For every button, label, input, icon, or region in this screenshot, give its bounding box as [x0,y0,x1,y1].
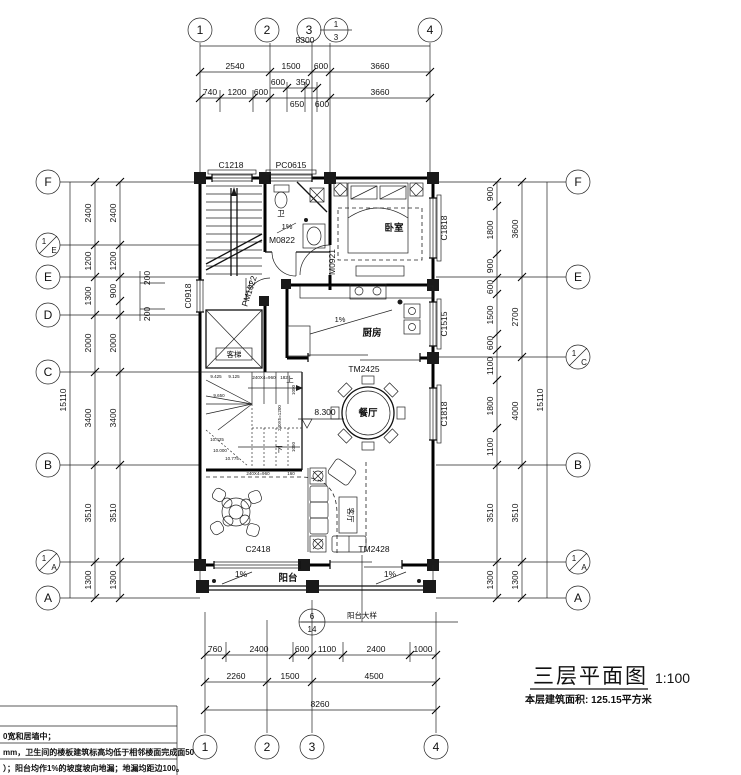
dim-label: 3660 [371,61,390,71]
dim-label: 650 [290,99,304,109]
dim-label: 2700 [510,307,520,326]
grid-bubble-C: C [44,365,53,379]
detail-number: 6 [310,612,315,621]
kitchen-label: 厨房 [362,327,381,339]
door-tm2425: TM2425 [308,353,420,374]
level-marker: 8.300 [314,407,336,417]
stair-note: 9.425 [210,374,222,379]
stair-note: 240X4=960 [246,471,270,476]
dim-label: 600 [314,61,328,71]
window-c1818-bedroom: C1818 [429,195,449,261]
dim-label: 350 [296,77,310,87]
dim-label: 1500 [281,671,300,681]
grid-bubble-1A-den: A [51,563,57,572]
bathroom-slope-label: 1% [282,222,293,231]
grid-bubble-E: E [44,270,52,284]
window-label-c1218: C1218 [218,160,243,170]
bedroom: 卧室 [334,183,423,276]
grid-bubble-1: 1 [197,23,204,37]
dim-label: 600 [485,280,495,294]
dim-label: 1100 [485,438,495,457]
grid-bubble-E-right: E [574,270,582,284]
door-label-tm2428: TM2428 [358,544,389,554]
dim-label: 1100 [318,644,337,654]
dim-label: 3600 [510,219,520,238]
window-label-c1515: C1515 [439,311,449,336]
dim-label: 3510 [510,503,520,522]
elevator: 客梯 [206,310,262,368]
dim-label: 600 [315,99,329,109]
note-row: 0宽和居墙中； [3,731,55,742]
dim-label: 1200 [83,251,93,270]
grid-bubble-3-bottom: 3 [309,740,316,754]
dim-label: 1200 [228,87,247,97]
grid-bubble-1A-num: 1 [42,554,47,563]
grid-bubble-B: B [44,458,52,472]
dim-label: 900 [485,187,495,201]
window-c0918: C0918 [183,280,204,312]
dim-label: 200 [142,307,152,321]
living-label: 客厅 [346,508,356,523]
window-c1218: C1218 [208,160,256,182]
dim-label: 600 [271,77,285,87]
dim-label: 3510 [83,503,93,522]
dim-label: 2400 [367,644,386,654]
top-dimensions: 8300 2540 1500 600 3660 600 350 740 1200… [196,35,434,178]
grid-bubble-F: F [44,175,51,189]
grid-bubble-1C-den: C [581,358,587,367]
note-row: mm，卫生间的楼板建筑标高均低于相邻楼面完成面50 [3,747,195,757]
dim-label: 2400 [250,644,269,654]
door-label-m0921: M0921 [327,249,337,275]
dim-label: 1000 [414,644,433,654]
stair-note: 182 [280,375,288,380]
stair-note: 10.425 [210,437,224,442]
drawing-scale: 1:100 [655,670,690,686]
stair-upper [206,186,262,276]
window-label-c1818-bedroom: C1818 [439,215,449,240]
dim-label: 3510 [485,503,495,522]
bottom-dimensions: 760 2400 600 1100 2400 1000 2260 1500 45… [193,600,448,759]
dim-label: 1300 [108,570,118,589]
dim-label: 740 [203,87,217,97]
dim-label: 4000 [510,401,520,420]
dim-right-total: 15110 [535,388,545,411]
floor-plan-drawing: 1 2 3 1 3 4 8300 2540 1500 600 3660 [0,0,741,775]
detail-label: 阳台大样 [347,610,377,620]
window-c1818-dining: C1818 [429,385,449,443]
dim-label: 3510 [108,503,118,522]
dim-label: 4500 [365,671,384,681]
dim-label: 2540 [226,61,245,71]
window-label-pc0615: PC0615 [276,160,307,170]
grid-bubble-F-right: F [574,175,581,189]
grid-bubble-1E-num: 1 [42,237,47,246]
dining: 餐厅 8.300 [298,376,405,450]
dim-label: 1300 [83,570,93,589]
dim-label: 3400 [83,408,93,427]
stair-down-label: 下 [275,445,283,454]
floor-plan-sheet: 1 2 3 1 3 4 8300 2540 1500 600 3660 [0,0,741,775]
dim-label: 2400 [108,203,118,222]
dim-label: 200 [142,271,152,285]
notes-table: 0宽和居墙中； mm，卫生间的楼板建筑标高均低于相邻楼面完成面50 ）；阳台均作… [0,706,195,775]
grid-bubble-4-bottom: 4 [433,740,440,754]
balcony-label: 阳台 [278,572,298,584]
window-pc0615: PC0615 [266,160,316,182]
stair-note: 10.775 [225,456,239,461]
dim-label: 1200 [108,251,118,270]
dim-label: 3400 [108,408,118,427]
stair-note: 240X4=960 [252,375,276,380]
door-label-tm2425: TM2425 [348,364,379,374]
balcony-slope-right: 1% [384,569,397,579]
grid-bubble-A: A [44,591,52,605]
dim-label: 900 [485,259,495,273]
grid-bubble-B-right: B [574,458,582,472]
bathroom-label: 卫 [277,209,285,218]
right-dimensions: 900 1800 900 600 1500 600 1100 1800 1100… [485,178,547,602]
dim-left-total: 15110 [58,388,68,411]
grid-bubble-1-bottom: 1 [202,740,209,754]
window-c2418: C2418 [214,544,300,569]
dim-label: 760 [208,644,222,654]
dim-label: 600 [485,336,495,350]
stair-note: 10.000 [213,448,227,453]
living-room: 客厅 [206,458,366,553]
grid-bubble-1E-den: E [51,246,56,255]
elevator-label: 客梯 [227,349,242,359]
dim-label: 3660 [371,87,390,97]
dim-label: 1300 [83,286,93,305]
kitchen-slope-label: 1% [335,315,346,324]
window-label-c1818-dining: C1818 [439,401,449,426]
bedroom-label: 卧室 [384,222,404,234]
top-grid-bubbles: 1 2 3 1 3 4 [188,18,442,42]
dim-label: 2000 [108,333,118,352]
stair-note: 1050 [291,384,296,395]
drawing-area-note: 本层建筑面积: 125.15平方米 [525,693,653,706]
stair-up-entry-label: 上 [246,280,254,289]
window-label-c2418: C2418 [245,544,270,554]
dim-label: 2260 [227,671,246,681]
note-row: ）；阳台均作1%的坡度坡向地漏；地漏均距边100。 [3,763,184,774]
dim-top-total: 8300 [296,35,315,45]
dim-bottom-total: 8260 [311,699,330,709]
door-label-m0822: M0822 [269,235,295,245]
stair-note: 9.650 [213,393,225,398]
window-c1515: C1515 [429,299,449,349]
dim-label: 1800 [485,220,495,239]
grid-bubble-A-right: A [574,591,582,605]
dim-label: 1800 [485,396,495,415]
dining-label: 餐厅 [357,407,378,419]
stair-note: 1050 [291,441,296,452]
dim-label: 600 [254,87,268,97]
stair-note: 160 [287,471,295,476]
detail-sheet: 14 [308,625,317,634]
dim-label: 1500 [485,305,495,324]
grid-bubble-1A-right-num: 1 [572,554,577,563]
grid-bubble-D: D [44,308,53,322]
stair-note: 240X5=1200 [277,405,282,431]
dim-label: 1300 [485,570,495,589]
drawing-title: 三层平面图 [533,665,648,688]
dim-label: 2000 [83,333,93,352]
grid-bubble-2: 2 [264,23,271,37]
dim-label: 1300 [510,570,520,589]
grid-bubble-1-3-den: 3 [334,33,339,42]
balcony-slope-left: 1% [235,569,248,579]
grid-bubble-2-bottom: 2 [264,740,271,754]
window-label-c0918: C0918 [183,283,193,308]
balcony: 1% 1% 阳台 [196,565,436,593]
grid-bubble-1C-num: 1 [572,349,577,358]
left-dimensions: 15110 2400 1200 1300 2000 3400 3510 1300… [58,178,165,602]
dim-label: 2400 [83,203,93,222]
grid-bubble-1A-right-den: A [581,563,587,572]
dim-label: 600 [295,644,309,654]
stair-note: 9.125 [228,374,240,379]
grid-bubble-4: 4 [427,23,434,37]
dim-label: 1100 [485,357,495,376]
dim-label: 900 [108,284,118,298]
grid-bubble-1-3-num: 1 [334,20,339,29]
title-block: 三层平面图 1:100 本层建筑面积: 125.15平方米 [525,665,690,706]
dim-label: 1500 [282,61,301,71]
kitchen: 1% 厨房 [288,284,433,356]
